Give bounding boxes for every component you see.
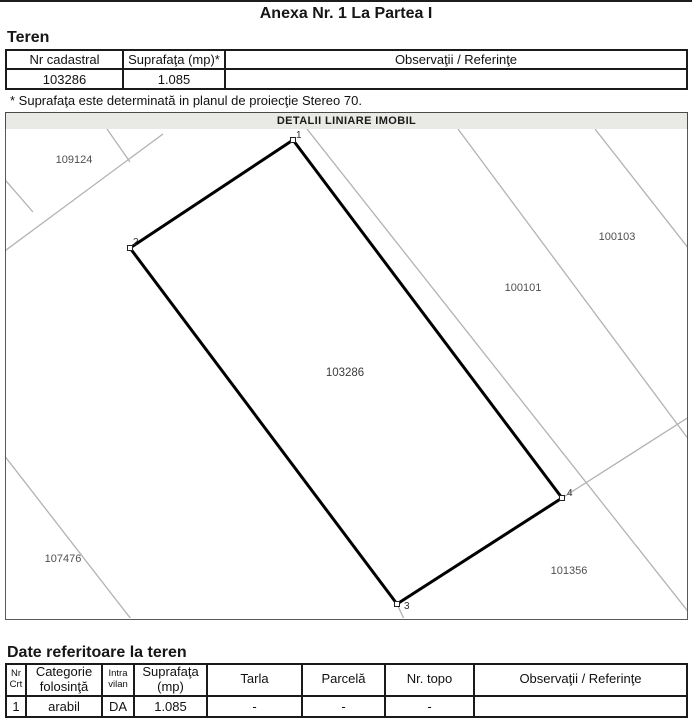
date-teren-data-row: 1 arabil DA 1.085 - - - [6,696,687,717]
parcel-label-103286: 103286 [326,367,364,379]
parcel-number-labels: 109124 100103 100101 103286 107476 10135… [45,154,636,577]
header-line: (mp) [135,680,206,695]
col-header-suprafata-mp: Suprafaţa (mp) [134,664,207,696]
cell-categorie: arabil [26,696,102,717]
parcel-boundary-line [6,174,33,212]
cell-nr-crt: 1 [6,696,26,717]
teren-section-heading: Teren [7,29,49,47]
cell-parcela: - [302,696,385,717]
cell-suprafata: 1.085 [123,69,225,89]
header-line: folosinţă [27,680,101,695]
col-header-parcela: Parcelă [302,664,385,696]
col-header-nr-topo: Nr. topo [385,664,474,696]
stereo70-footnote: * Suprafaţa este determinată in planul d… [10,93,362,108]
parcel-boundary-line [458,129,687,440]
col-header-tarla: Tarla [207,664,302,696]
col-header-nr-crt: Nr Crt [6,664,26,696]
vertex-label-2: 2 [133,237,139,248]
parcel-boundary-line [6,450,131,618]
col-header-categorie-folosinta: Categorie folosinţă [26,664,102,696]
vertex-marker-2 [128,246,133,251]
cell-nr-topo: - [385,696,474,717]
date-teren-header-row: Nr Crt Categorie folosinţă Intra vilan S… [6,664,687,696]
header-line: Crt [7,680,25,691]
cadastral-map: 1 2 3 4 109124 100103 100101 103286 1074… [5,129,688,620]
parcel-label-109124: 109124 [56,154,93,166]
teren-table-data-row: 103286 1.085 [6,69,687,89]
vertex-label-3: 3 [404,601,410,612]
map-canvas: 1 2 3 4 109124 100103 100101 103286 1074… [6,129,687,618]
cell-intravilan: DA [102,696,134,717]
vertex-label-4: 4 [567,488,573,499]
parcel-label-100103: 100103 [599,231,636,243]
vertex-label-1: 1 [296,130,302,141]
parcel-label-100101: 100101 [505,282,542,294]
page-title: Anexa Nr. 1 La Partea I [0,5,692,23]
parcel-label-107476: 107476 [45,553,82,565]
vertex-marker-3 [395,602,400,607]
col-header-nr-cadastral: Nr cadastral [6,50,123,69]
col-header-observatii: Observaţii / Referinţe [225,50,687,69]
col-header-observatii-referinte: Observaţii / Referinţe [474,664,687,696]
header-line: vilan [103,680,133,691]
parcel-boundary-line [107,129,130,162]
cadastral-annex-page: Anexa Nr. 1 La Partea I Teren Nr cadastr… [0,0,692,720]
col-header-intravilan: Intra vilan [102,664,134,696]
header-line: Suprafaţa [135,665,206,680]
vertex-marker-4 [560,496,565,501]
cell-nr-cadastral: 103286 [6,69,123,89]
parcel-label-101356: 101356 [551,565,588,577]
cell-observatii2 [474,696,687,717]
cell-suprafata-mp: 1.085 [134,696,207,717]
parcel-boundary-line [6,134,163,256]
date-teren-section-heading: Date referitoare la teren [7,644,187,662]
vertex-marker-1 [291,138,296,143]
teren-table: Nr cadastral Suprafaţa (mp)* Observaţii … [5,49,688,90]
header-line: Categorie [27,665,101,680]
parcel-boundary-line [562,417,687,498]
cell-observatii [225,69,687,89]
date-teren-table: Nr Crt Categorie folosinţă Intra vilan S… [5,663,688,718]
col-header-suprafata: Suprafaţa (mp)* [123,50,225,69]
cell-tarla: - [207,696,302,717]
teren-table-header-row: Nr cadastral Suprafaţa (mp)* Observaţii … [6,50,687,69]
map-title-bar: DETALII LINIARE IMOBIL [5,112,688,130]
